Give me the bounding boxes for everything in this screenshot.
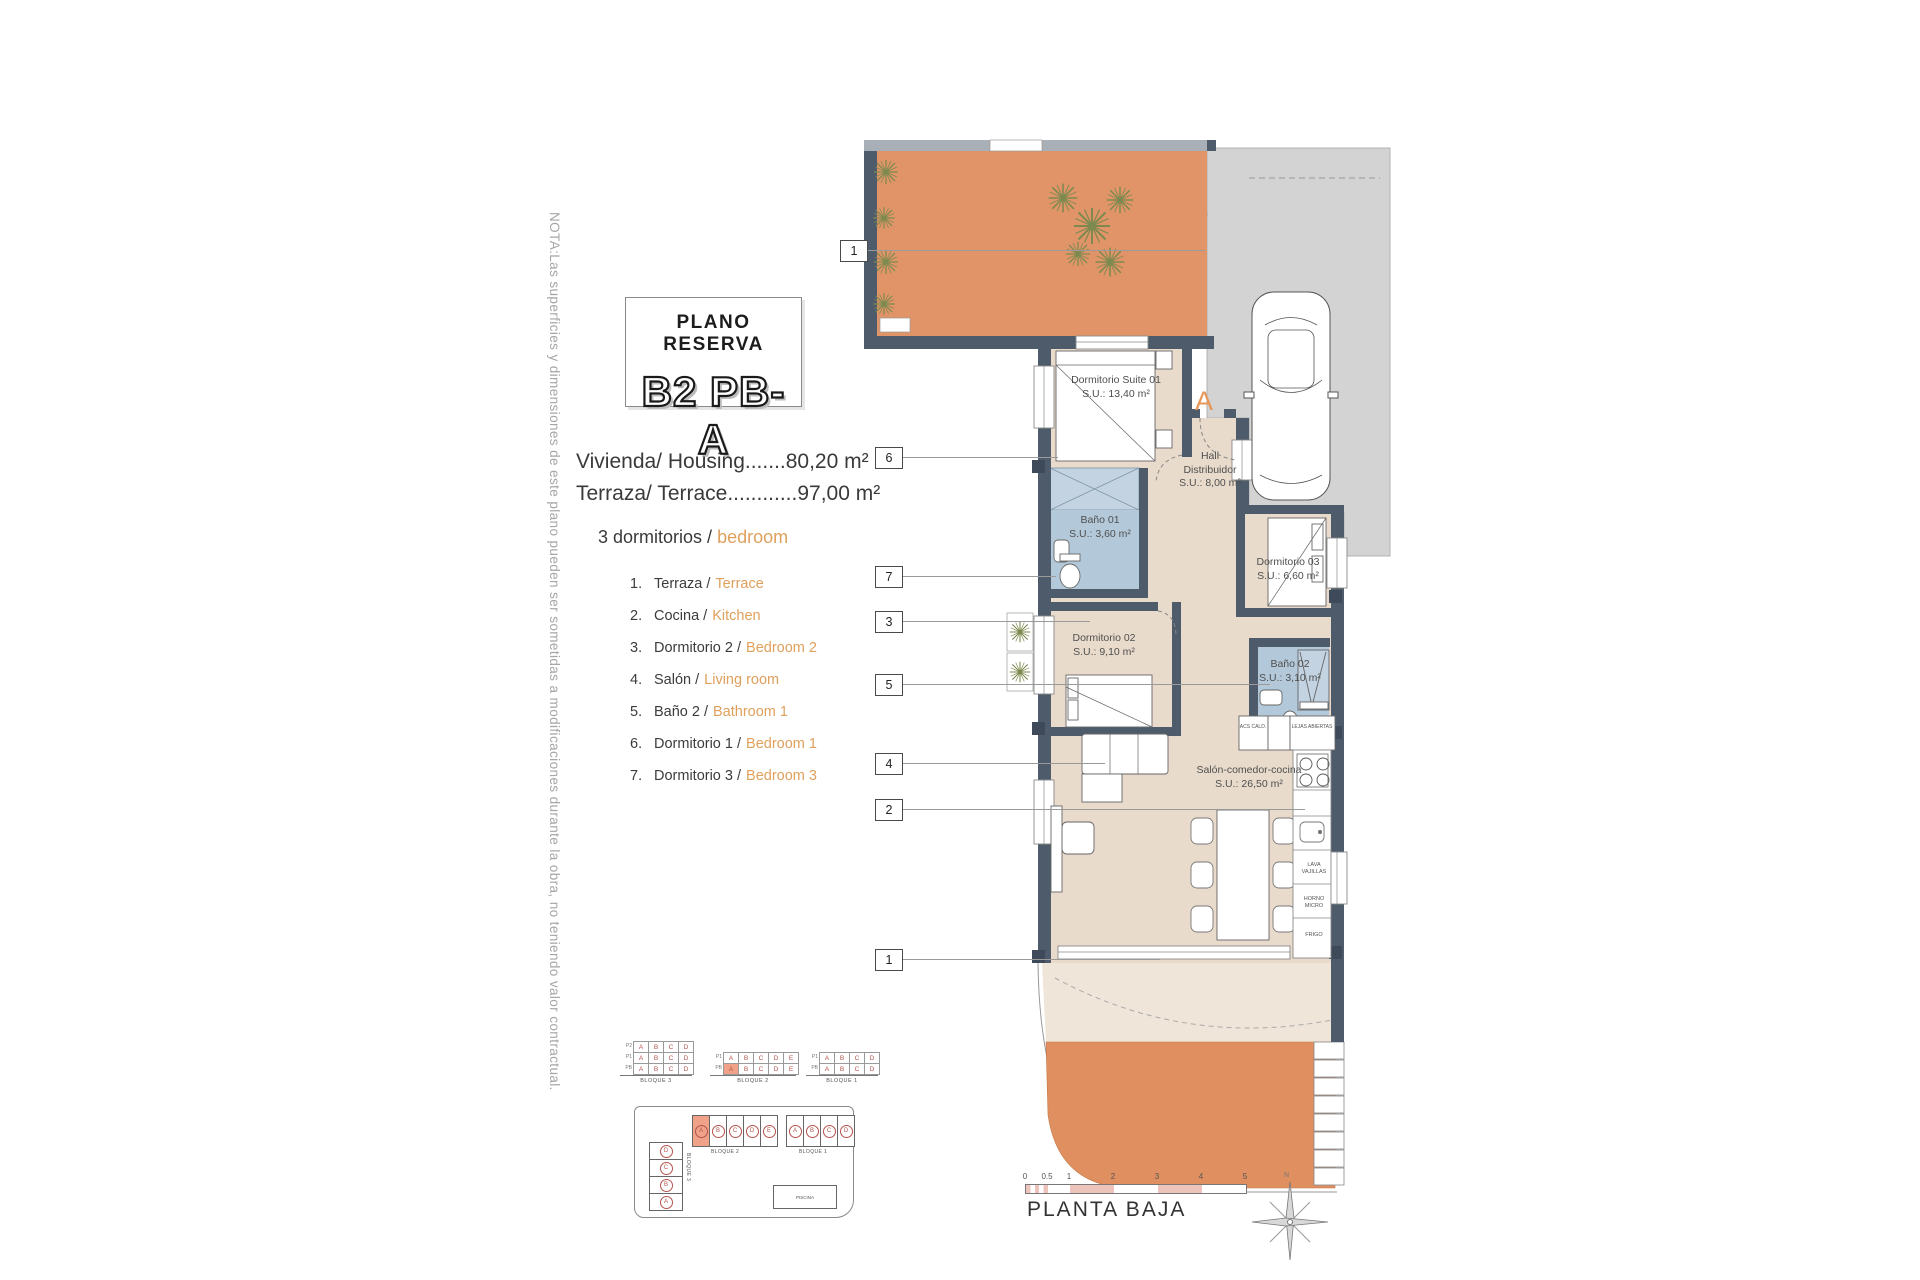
compass-north-label: N [1284, 1172, 1289, 1179]
label-fridge: FRIGO [1296, 932, 1332, 939]
legend-item-number: 3. [630, 640, 654, 656]
legend-item: 2. Cocina / Kitchen [630, 608, 817, 624]
legend-item: 7. Dormitorio 3 / Bedroom 3 [630, 768, 817, 784]
scale-tick: 3 [1147, 1172, 1167, 1181]
block-table-2: P1 ABCDE PB ABCDE BLOQUE 2 [710, 1052, 799, 1084]
marker-line [902, 763, 1105, 764]
plan-marker-6: 6 [875, 447, 903, 469]
legend-item-es: Terraza / [654, 576, 710, 592]
legend-item-number: 2. [630, 608, 654, 624]
keyplan-unit: C [649, 1159, 683, 1177]
plan-marker-5: 5 [875, 674, 903, 696]
keyplan-block3-label: BLOQUE 3 [685, 1153, 691, 1181]
unit-cell: D [678, 1063, 694, 1075]
unit-cell: D [864, 1063, 880, 1075]
label-cabinet-1: ACS CALD. [1238, 724, 1268, 730]
plan-marker-4: 4 [875, 753, 903, 775]
room-label-salon: Salón-comedor-cocina S.U.: 26,50 m² [1185, 764, 1313, 791]
scale-tick: 4 [1191, 1172, 1211, 1181]
unit-cell: D [768, 1063, 784, 1075]
key-site-plan: ABCDE BLOQUE 2 ABCD BLOQUE 1 DCBA BLOQUE… [634, 1106, 854, 1218]
room-label-dorm3: Dormitorio 03 S.U.: 6,60 m² [1246, 556, 1330, 583]
unit-cell: A [633, 1063, 649, 1075]
keyplan-unit: D [649, 1142, 683, 1160]
keyplan-block1-label: BLOQUE 1 [799, 1149, 827, 1155]
marker-line [867, 250, 1205, 251]
lower-terrace-floor [1042, 963, 1335, 1042]
legend-item-en: Terrace [715, 576, 763, 592]
car-icon [1244, 292, 1338, 500]
legend-item-number: 6. [630, 736, 654, 752]
keyplan-unit: B [803, 1115, 821, 1147]
plan-marker-7: 7 [875, 566, 903, 588]
scale-tick: 0.5 [1037, 1172, 1057, 1181]
keyplan-block2-label: BLOQUE 2 [711, 1149, 739, 1155]
unit-cell: A [819, 1063, 835, 1075]
unit-cell: A [723, 1063, 739, 1075]
keyplan-unit: C [726, 1115, 744, 1147]
plan-marker-1-top: 1 [840, 240, 868, 262]
unit-cell: C [849, 1063, 865, 1075]
entrance-label: A [1195, 386, 1213, 417]
legend-item: 5. Baño 2 / Bathroom 1 [630, 704, 817, 720]
legend-item-number: 4. [630, 672, 654, 688]
label-oven-micro: HORNO MICRO [1296, 896, 1332, 910]
scale-bar [1025, 1184, 1247, 1194]
room-label-hall: Hall Distribuidor S.U.: 8,00 m² [1176, 450, 1244, 491]
marker-line [902, 684, 1270, 685]
window-planters [1007, 613, 1033, 691]
label-dishwasher: LAVA VAJILLAS [1296, 862, 1332, 876]
plan-marker-1-bottom: 1 [875, 949, 903, 971]
unit-cell: B [834, 1063, 850, 1075]
legend-item-en: Kitchen [712, 608, 760, 624]
disclaimer-note: NOTA:Las superficies y dimensiones de es… [547, 212, 562, 1112]
room-label-suite: Dormitorio Suite 01 S.U.: 13,40 m² [1056, 374, 1176, 401]
bedrooms-en: bedroom [717, 527, 788, 547]
plan-marker-2: 2 [875, 799, 903, 821]
marker-line [902, 621, 1090, 622]
lower-terrace-orange [1046, 1042, 1335, 1188]
room-label-dorm2: Dormitorio 02 S.U.: 9,10 m² [1058, 632, 1150, 659]
terrace-label-box [880, 318, 910, 332]
compass-rose [1248, 1180, 1332, 1264]
scale-tick: 5 [1235, 1172, 1255, 1181]
legend-item-es: Baño 2 / [654, 704, 708, 720]
marker-line [902, 576, 1056, 577]
floor-plan-sheet: NOTA:Las superficies y dimensiones de es… [0, 0, 1920, 1280]
room-legend: 1. Terraza / Terrace 2. Cocina / Kitchen… [630, 576, 817, 784]
legend-item-number: 1. [630, 576, 654, 592]
bedrooms-line: 3 dormitorios / bedroom [598, 527, 788, 548]
legend-item: 1. Terraza / Terrace [630, 576, 817, 592]
legend-item: 6. Dormitorio 1 / Bedroom 1 [630, 736, 817, 752]
legend-item-en: Living room [704, 672, 779, 688]
label-cabinet-2: LEJAS ABIERTAS [1288, 724, 1336, 730]
plan-marker-3: 3 [875, 611, 903, 633]
marker-line [902, 457, 1058, 458]
keyplan-unit: B [709, 1115, 727, 1147]
unit-cell: B [648, 1063, 664, 1075]
scale-tick: 1 [1059, 1172, 1079, 1181]
keyplan-unit: A [786, 1115, 804, 1147]
unit-cell: C [753, 1063, 769, 1075]
keyplan-unit: A [692, 1115, 710, 1147]
keyplan-pool: PISCINA [773, 1185, 837, 1209]
legend-item: 3. Dormitorio 2 / Bedroom 2 [630, 640, 817, 656]
legend-item-en: Bathroom 1 [713, 704, 788, 720]
page-title: PLANO RESERVA [626, 312, 801, 356]
room-label-bano2: Baño 02 S.U.: 3,10 m² [1250, 658, 1330, 685]
marker-line [902, 959, 1160, 960]
title-box: PLANO RESERVA B2 PB-A [625, 297, 802, 407]
legend-item-es: Dormitorio 3 / [654, 768, 741, 784]
scale-tick: 0 [1015, 1172, 1035, 1181]
legend-item-es: Salón / [654, 672, 699, 688]
legend-item-number: 5. [630, 704, 654, 720]
marker-line [902, 809, 1305, 810]
unit-cell: E [783, 1063, 799, 1075]
keyplan-unit: D [743, 1115, 761, 1147]
bedrooms-es: 3 dormitorios / [598, 527, 712, 547]
room-label-bano1: Baño 01 S.U.: 3,60 m² [1056, 514, 1144, 541]
unit-cell: B [738, 1063, 754, 1075]
legend-item-en: Bedroom 1 [746, 736, 817, 752]
terrace-gate-gap [990, 140, 1042, 151]
keyplan-unit: B [649, 1176, 683, 1194]
floor-title: PLANTA BAJA [1027, 1198, 1186, 1222]
legend-item-en: Bedroom 3 [746, 768, 817, 784]
legend-item-number: 7. [630, 768, 654, 784]
top-terrace-floor [877, 151, 1207, 336]
unit-cell: C [663, 1063, 679, 1075]
legend-item-es: Dormitorio 1 / [654, 736, 741, 752]
legend-item-es: Dormitorio 2 / [654, 640, 741, 656]
keyplan-unit: E [760, 1115, 778, 1147]
legend-item: 4. Salón / Living room [630, 672, 817, 688]
block-table-1: P1 ABCD PB ABCD BLOQUE 1 [806, 1052, 880, 1084]
scale-tick: 2 [1103, 1172, 1123, 1181]
keyplan-unit: A [649, 1193, 683, 1211]
keyplan-unit: D [837, 1115, 855, 1147]
legend-item-es: Cocina / [654, 608, 707, 624]
keyplan-unit: C [820, 1115, 838, 1147]
block-table-3: P2 ABCD P1 ABCD PB ABCD BLOQUE 3 [620, 1041, 694, 1084]
legend-item-en: Bedroom 2 [746, 640, 817, 656]
floor-plan-drawing [820, 130, 1420, 1240]
